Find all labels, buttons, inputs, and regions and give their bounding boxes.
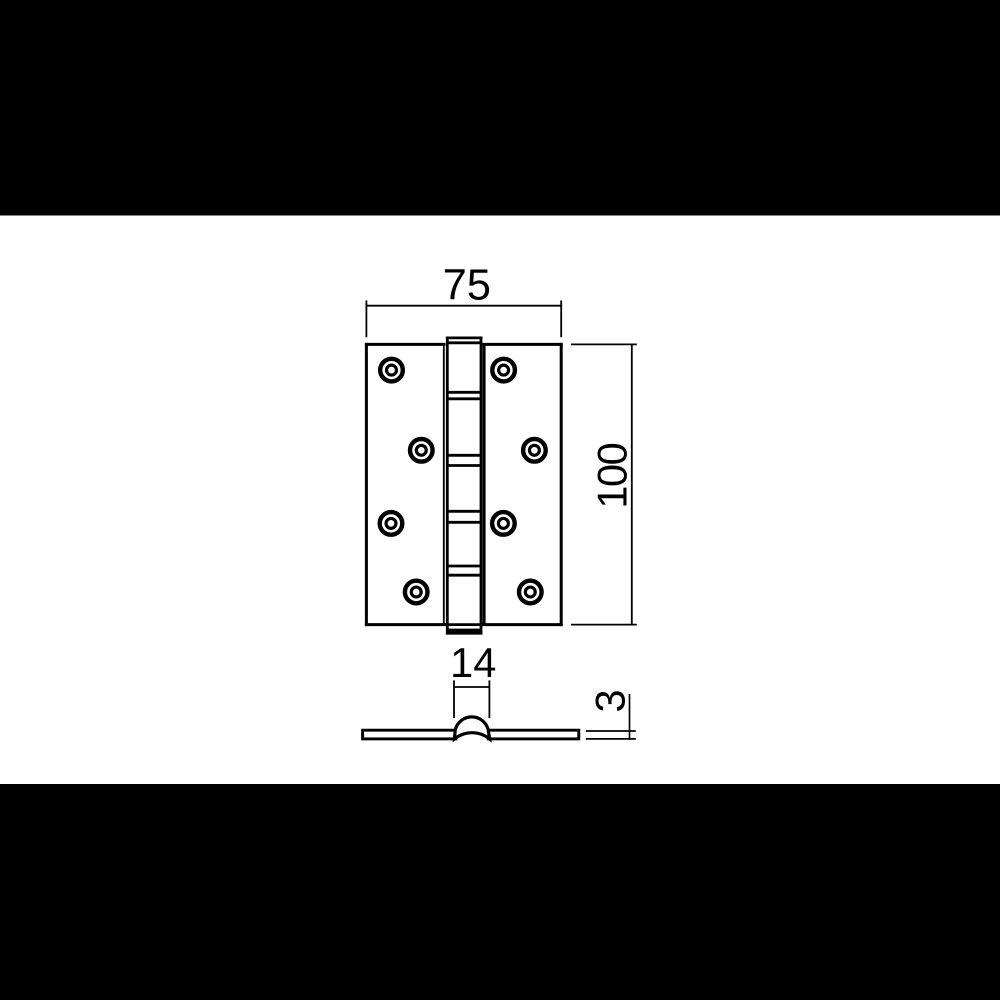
svg-text:14: 14 [450,639,496,686]
svg-text:3: 3 [586,689,633,712]
svg-text:75: 75 [443,262,491,310]
svg-text:100: 100 [589,443,636,508]
